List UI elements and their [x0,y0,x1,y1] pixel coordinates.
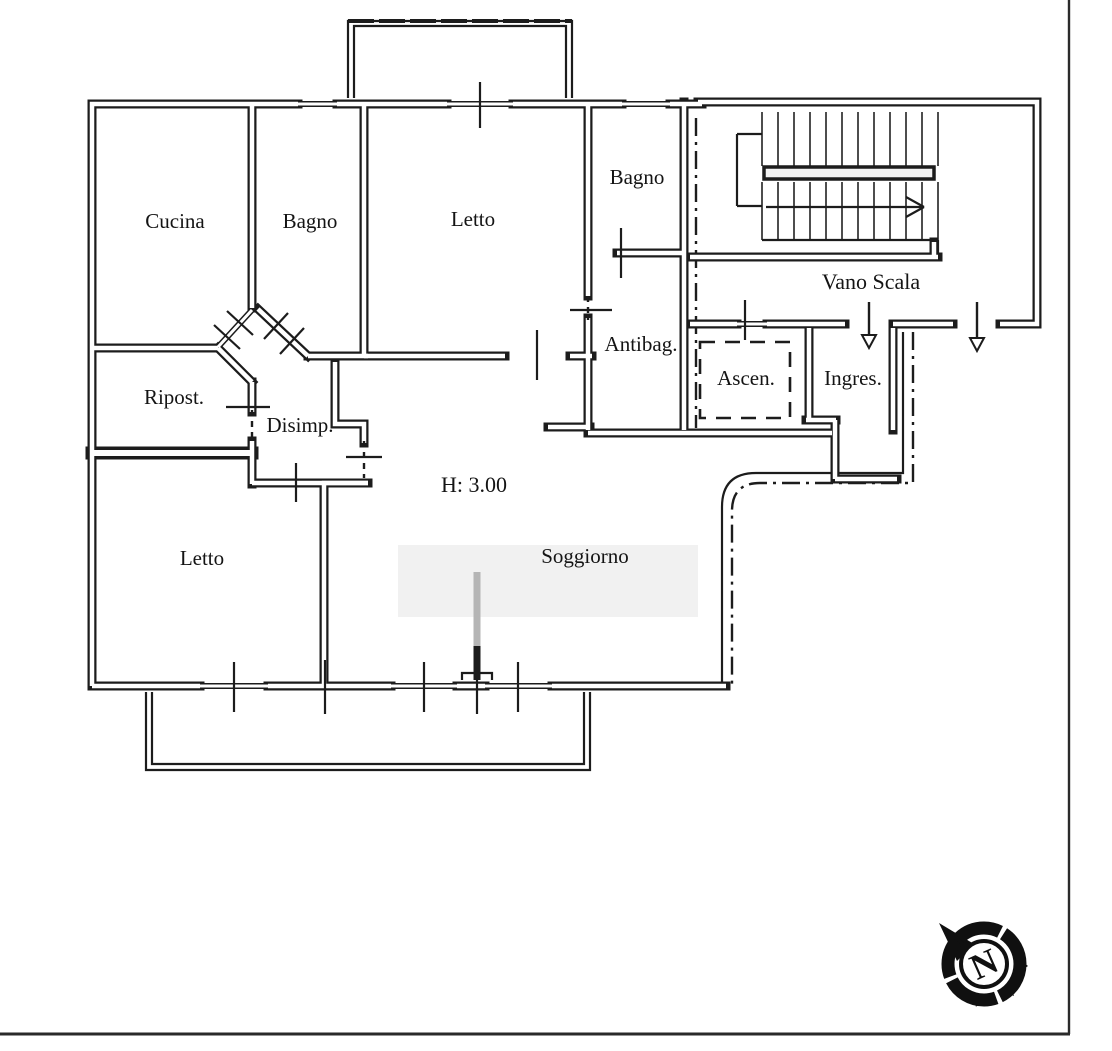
room-labels: Cucina Bagno Letto Bagno Antibag. Vano S… [144,165,920,570]
page-frame [0,0,1070,1034]
room-label-bagno-2: Bagno [610,165,665,189]
room-label-ingresso: Ingres. [824,366,882,390]
room-label-disimpegno: Disimp. [266,413,333,437]
floor-plan-svg: Cucina Bagno Letto Bagno Antibag. Vano S… [0,0,1112,1051]
room-label-soggiorno: Soggiorno [541,544,629,568]
room-label-bagno-1: Bagno [283,209,338,233]
room-label-ascensore: Ascen. [717,366,775,390]
stair-direction-arrow [766,197,924,217]
room-label-antibagno: Antibag. [605,332,678,356]
entry-arrowhead-2 [970,338,984,351]
floor-plan-page: Cucina Bagno Letto Bagno Antibag. Vano S… [0,0,1112,1051]
entry-arrowhead-1 [862,335,876,348]
balcony-bottom [146,692,590,770]
room-label-letto-1: Letto [451,207,495,231]
compass-north-icon: N [939,923,1028,1007]
annotation-ceiling-height: H: 3.00 [441,472,507,497]
room-label-cucina: Cucina [145,209,205,233]
staircase [737,112,938,256]
door-openings [252,296,588,478]
stair-handrail [764,167,934,179]
room-label-letto-2: Letto [180,546,224,570]
room-label-vano-scala: Vano Scala [822,269,921,294]
balcony-top [348,21,572,98]
room-label-ripostiglio: Ripost. [144,385,204,409]
